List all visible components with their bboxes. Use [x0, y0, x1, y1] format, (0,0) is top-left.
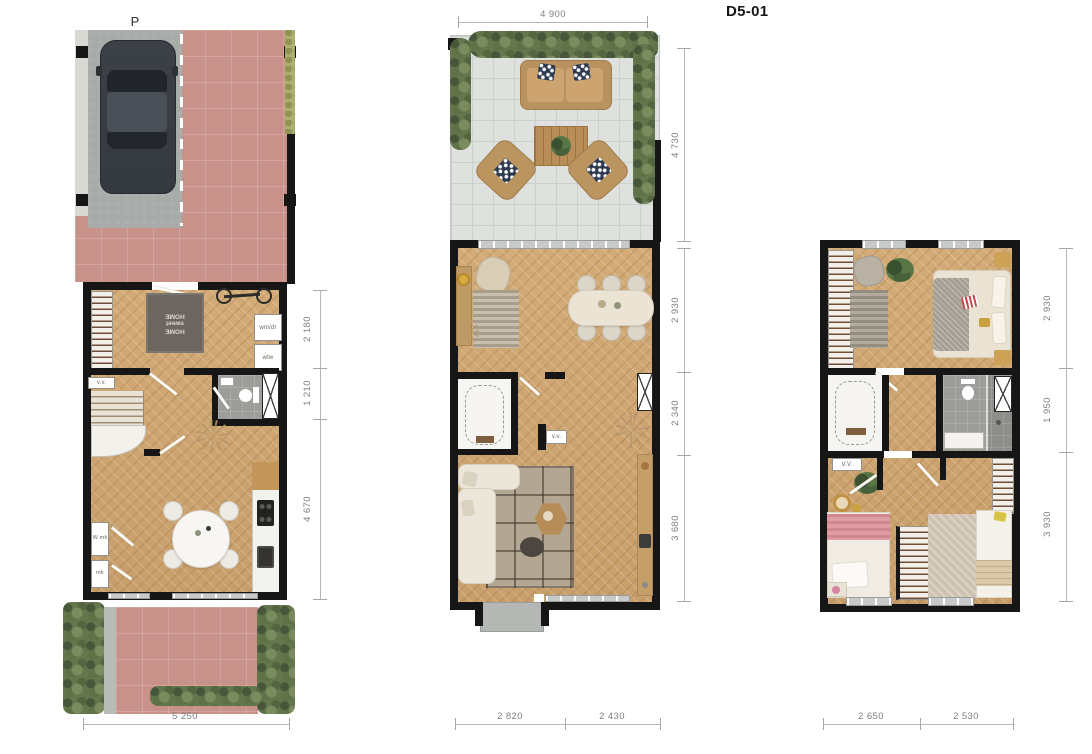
garden-hedge-bottom: [150, 686, 262, 706]
pink-decor: [832, 586, 840, 594]
patterned-pillow: [537, 63, 556, 81]
table-plant: [551, 136, 571, 156]
wardrobe: [992, 458, 1014, 514]
table-lamp: [457, 273, 470, 286]
interior-wall: [828, 451, 1012, 458]
dim-tick: [289, 718, 290, 730]
patterned-pillow: [585, 157, 612, 184]
dim-label: 2 340: [670, 389, 682, 437]
dining-table: [568, 290, 654, 326]
interior-wall: [458, 372, 518, 379]
stair-newel: [476, 436, 494, 443]
interior-wall: [882, 375, 889, 451]
dim-label: 4 670: [302, 485, 314, 533]
dim-tick: [1059, 452, 1073, 453]
wtw-unit-box: wtw: [254, 344, 282, 371]
entry-door-opening: [534, 594, 544, 602]
dim-tick: [313, 290, 327, 291]
dried-plant: [196, 420, 230, 452]
dim-tick: [823, 718, 824, 730]
interior-wall: [511, 379, 518, 455]
meter-closet: mk: [91, 560, 109, 588]
parking-dashed-line: [180, 34, 183, 226]
interior-wall: [144, 449, 160, 456]
porch-wall: [475, 602, 483, 626]
car-roof: [107, 92, 167, 132]
breakfast-tray: [979, 318, 990, 327]
media-sideboard: [637, 454, 653, 596]
dim-label: 4 730: [670, 121, 682, 169]
door-opening: [884, 451, 912, 458]
sofa-pillow: [461, 499, 475, 517]
dim-label: 1 210: [302, 369, 314, 417]
striped-rug: [473, 290, 519, 348]
doormat: HOME sweet HOME: [146, 293, 204, 353]
interior-wall: [877, 458, 883, 490]
speaker: [639, 534, 651, 548]
bedroom-rug: [928, 514, 978, 598]
bedroom-window: [846, 597, 892, 606]
interior-wall: [538, 424, 546, 450]
dim-tick: [313, 419, 327, 420]
dim-tick: [677, 248, 691, 249]
car-mirror-right: [172, 66, 178, 76]
dim-tick: [920, 718, 921, 730]
sideboard-decor: [641, 462, 649, 470]
vv-label-box: v.v.: [546, 430, 567, 444]
pink-blanket: [827, 514, 890, 540]
patterned-pillow: [572, 63, 591, 81]
bedroom-window: [938, 240, 984, 249]
dim-line: [1066, 248, 1067, 602]
dim-line: [455, 724, 660, 725]
dim-tick: [458, 16, 459, 28]
dim-label: 2 180: [302, 305, 314, 353]
interior-wall: [936, 375, 943, 451]
dim-tick: [565, 718, 566, 730]
interior-wall: [91, 368, 150, 375]
wtw-label: wtw: [263, 355, 274, 361]
dim-tick: [647, 16, 648, 28]
round-dining-table: [172, 510, 230, 568]
porch-wall: [541, 602, 549, 626]
ottoman: [520, 537, 544, 557]
shaft-box: [637, 373, 653, 411]
car-rear-window: [107, 132, 167, 149]
garden-path: [104, 607, 116, 714]
kitchen-sink: [257, 546, 274, 568]
stair-walkline: [835, 381, 875, 445]
floorplan-sheet: D5-01 P HOME sweet HOME wm/dr wtw v.v.: [0, 0, 1092, 754]
dim-line: [823, 724, 1013, 725]
dim-label: 2 430: [584, 711, 640, 722]
vv-label-box: v.v.: [88, 377, 115, 389]
kitchen-tall-cabinet: [252, 462, 279, 490]
page-title: D5-01: [726, 3, 796, 23]
dim-tick: [677, 241, 691, 242]
coffee-table-decor: [543, 511, 553, 521]
dim-tick: [1059, 601, 1073, 602]
dim-tick: [313, 368, 327, 369]
dim-tick: [1013, 718, 1014, 730]
washer-dryer-box: wm/dr: [254, 314, 282, 341]
dim-label: 1 950: [1042, 386, 1054, 434]
doormat-text: HOME sweet HOME: [157, 312, 193, 335]
dim-tick: [1059, 368, 1073, 369]
nightstand: [994, 252, 1011, 267]
interior-wall: [458, 449, 518, 455]
dim-tick: [677, 48, 691, 49]
nightstand: [994, 350, 1011, 365]
stairwell: [828, 375, 882, 451]
terrace-sliding-door: [478, 240, 630, 249]
vanity-sink: [944, 432, 984, 449]
dim-label: 2 530: [938, 711, 994, 722]
car-mirror-left: [96, 66, 102, 76]
terrace-planting-right: [633, 44, 655, 204]
vv-label-box: V.V.: [832, 458, 862, 471]
dim-line: [83, 724, 290, 725]
bicycle-icon: [256, 288, 272, 304]
table-decor: [614, 302, 621, 309]
dim-tick: [313, 599, 327, 600]
dim-label: 3 680: [670, 504, 682, 552]
boundary-wall: [287, 134, 295, 284]
car-windshield: [107, 70, 167, 92]
table-decor: [195, 530, 201, 536]
back-door: [108, 593, 150, 599]
bedroom-window: [862, 240, 906, 249]
toilet-sink: [220, 377, 234, 386]
bed-pillow: [991, 312, 1007, 345]
stairwell: [458, 379, 511, 451]
table-decor: [598, 300, 606, 308]
dim-tick: [455, 718, 456, 730]
bed-throw: [933, 278, 969, 351]
garden-hedge-left: [63, 602, 105, 714]
folded-blanket: [976, 560, 1012, 586]
dried-plant: [459, 320, 479, 344]
dim-label: 2 650: [843, 711, 899, 722]
terrace-planting-left: [450, 38, 471, 150]
shaft-box: [262, 373, 279, 419]
interior-wall: [545, 372, 565, 379]
dim-label: 2 930: [1042, 284, 1054, 332]
toilet-bowl: [961, 385, 975, 401]
dim-tick: [83, 718, 84, 730]
dim-label: 4 900: [525, 9, 581, 20]
shower-drain: [996, 420, 1001, 425]
dim-tick: [1059, 248, 1073, 249]
garden-hedge-right: [257, 605, 295, 714]
table-decor: [206, 526, 211, 531]
vv-label: v.v.: [97, 380, 106, 386]
wall-stub: [76, 46, 88, 58]
striped-rug: [850, 290, 888, 348]
patterned-pillow: [493, 157, 520, 184]
rear-window: [172, 593, 258, 599]
meter-closet-label: mk: [96, 571, 104, 577]
dim-label: 2 930: [670, 286, 682, 334]
bedroom-window: [928, 597, 974, 606]
wall-stub: [76, 194, 88, 206]
parking-label: P: [125, 14, 145, 28]
front-window: [545, 595, 630, 602]
dried-plant: [616, 412, 648, 448]
sofa-pillow: [462, 471, 479, 488]
coat-closet: [91, 291, 113, 371]
dim-tick: [677, 372, 691, 373]
bed-pillow: [991, 276, 1007, 309]
dim-label: 2 820: [482, 711, 538, 722]
dim-line: [684, 48, 685, 242]
dim-line: [320, 290, 321, 600]
dim-tick: [660, 718, 661, 730]
vv-label: v.v.: [552, 434, 561, 440]
utility-closet: W mk: [91, 522, 109, 556]
plant: [886, 258, 914, 282]
wardrobe: [896, 526, 929, 600]
shower-glass: [986, 375, 988, 451]
dim-label: 3 930: [1042, 500, 1054, 548]
toilet: [252, 386, 260, 404]
dim-line: [458, 22, 648, 23]
interior-wall: [828, 368, 1012, 375]
utility-closet-label: W mk: [93, 536, 108, 542]
vv-label: V.V.: [841, 462, 852, 468]
terrace-planting-top: [468, 31, 658, 58]
shaft-box: [994, 376, 1012, 412]
washer-dryer-label: wm/dr: [259, 325, 276, 331]
hedge-strip: [285, 30, 295, 134]
entry-porch: [480, 602, 544, 632]
dim-tick: [677, 455, 691, 456]
toilet-bowl: [238, 388, 253, 403]
dim-line: [684, 248, 685, 602]
sideboard-decor: [642, 582, 648, 588]
staircase: [91, 391, 144, 425]
dim-label: 5 250: [160, 711, 210, 722]
stair-newel: [846, 428, 866, 435]
cooktop: [257, 500, 274, 526]
interior-wall: [940, 458, 946, 480]
toilet: [960, 378, 976, 385]
round-mirror: [833, 494, 851, 512]
yellow-decor: [993, 511, 1006, 522]
dim-tick: [677, 601, 691, 602]
